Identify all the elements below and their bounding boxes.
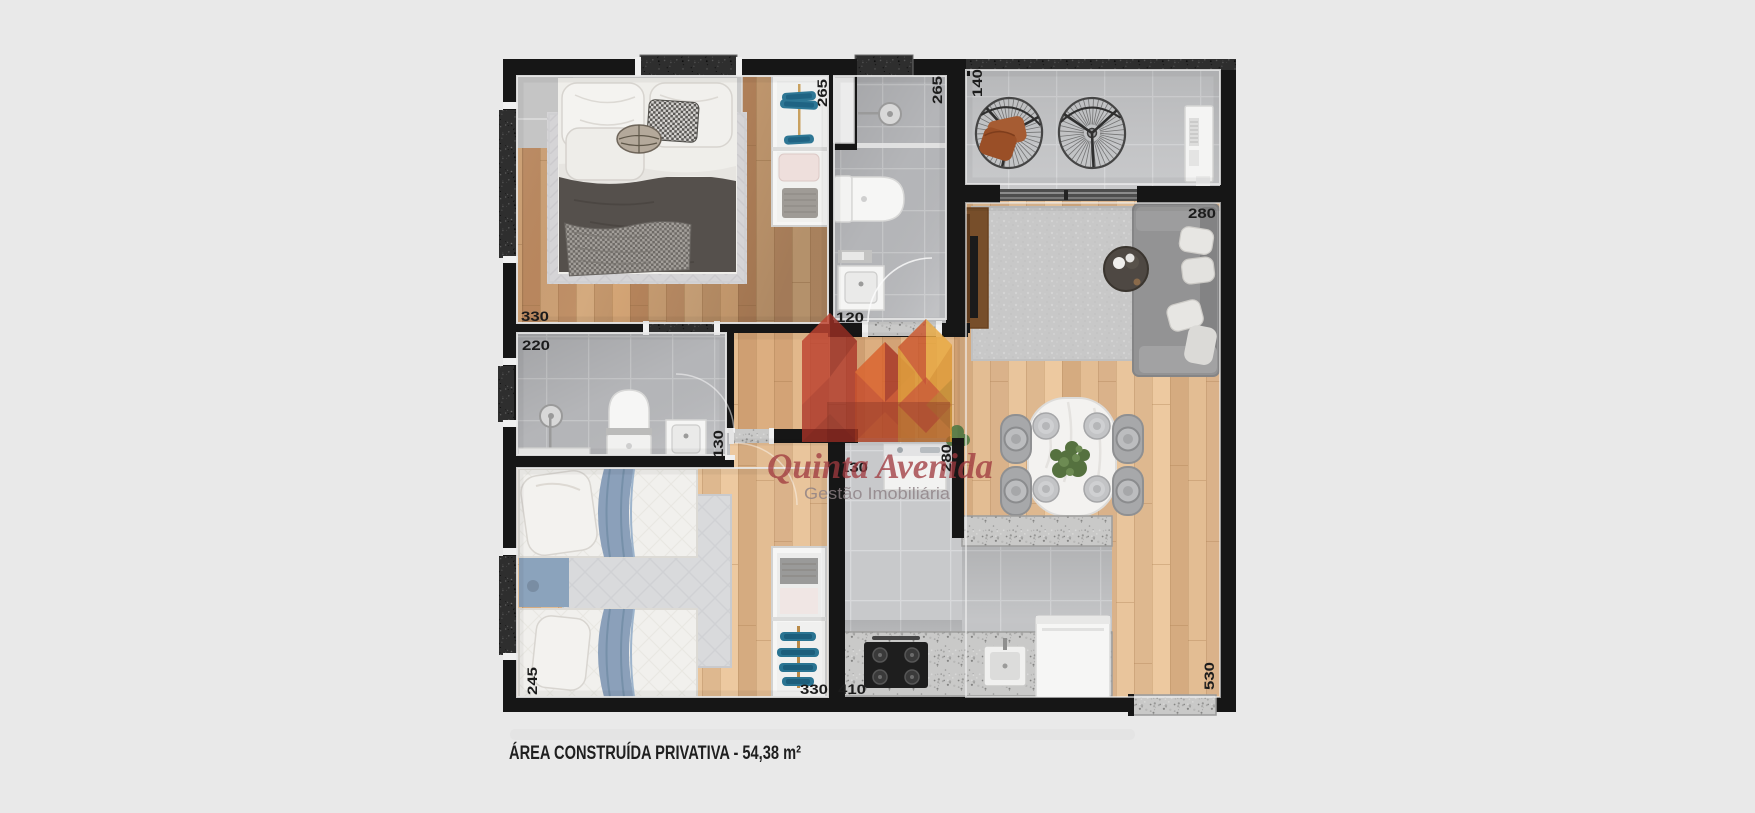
svg-text:ÁREA CONSTRUÍDA PRIVATIVA - 54: ÁREA CONSTRUÍDA PRIVATIVA - 54,38 m² (509, 741, 801, 764)
svg-text:410: 410 (838, 681, 866, 697)
svg-text:280: 280 (1188, 205, 1216, 221)
svg-text:530: 530 (1201, 662, 1217, 690)
svg-text:140: 140 (969, 69, 985, 97)
svg-text:220: 220 (522, 337, 550, 353)
svg-text:265: 265 (814, 79, 830, 107)
svg-text:265: 265 (929, 76, 945, 104)
svg-text:330: 330 (521, 308, 549, 324)
svg-text:Quinta Avenida: Quinta Avenida (767, 446, 993, 486)
svg-text:330: 330 (800, 681, 828, 697)
svg-text:120: 120 (836, 309, 864, 325)
svg-text:Gestão Imobiliária: Gestão Imobiliária (804, 485, 951, 503)
svg-text:245: 245 (524, 667, 540, 695)
svg-text:130: 130 (710, 430, 726, 458)
